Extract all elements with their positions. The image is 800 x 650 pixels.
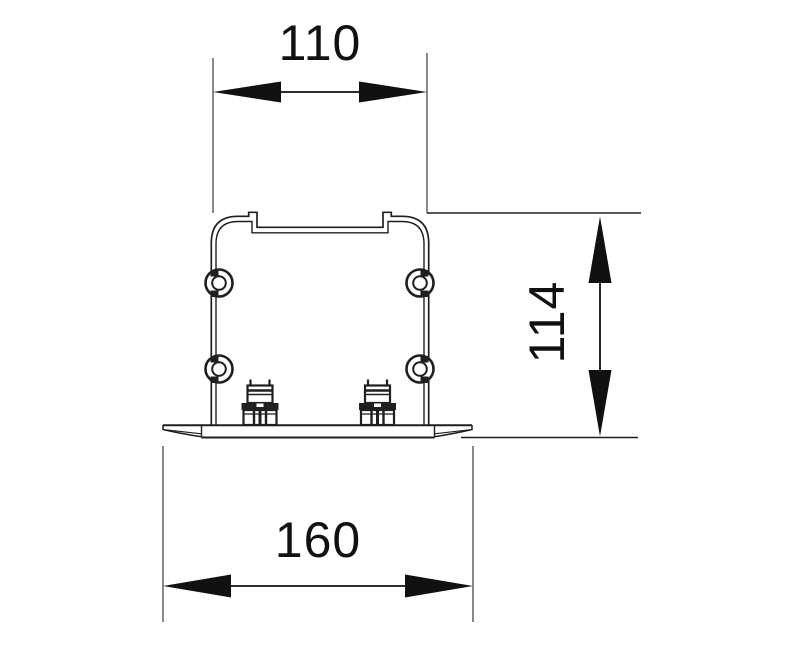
grommet-clip-icon [206,270,233,298]
dim-side-height-arrow [589,217,612,437]
dim-top-width-arrow [213,82,427,103]
dim-base-width-arrow [163,575,473,598]
arrowhead-down-icon [589,370,612,437]
grommet-clip-icon [407,270,434,298]
grommet-clips [206,270,434,384]
grommet-clip-icon [206,356,233,384]
arrowhead-left-icon [213,82,281,103]
arrowhead-left-icon [163,575,231,598]
arrowhead-right-icon [359,82,427,103]
arrowhead-right-icon [405,575,473,598]
housing-frame-outline [211,212,428,425]
dim-label-top-width: 110 [238,18,402,68]
ceiling-plate-outline [163,425,472,438]
dim-label-base-width: 160 [236,515,400,565]
dim-label-side-height: 114 [522,242,572,402]
pipe-connectors [242,380,397,426]
pipe-connector-icon [359,380,396,426]
drawing-linework [0,0,800,650]
technical-drawing-canvas: 110 114 160 [0,0,800,650]
grommet-clip-icon [407,356,434,384]
frame-outer-contour [211,212,428,425]
arrowhead-up-icon [589,217,612,284]
pipe-connector-icon [242,380,279,426]
